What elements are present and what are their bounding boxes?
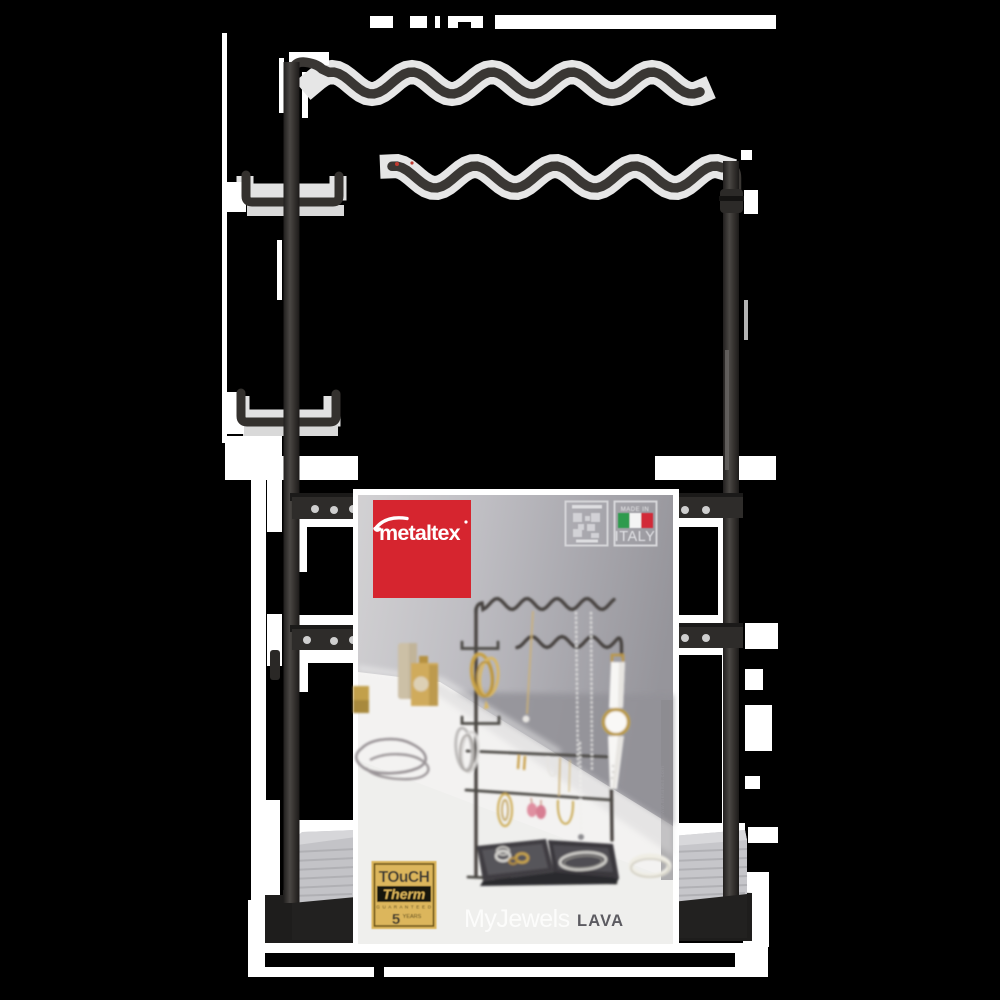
svg-text:MyJewels: MyJewels — [464, 905, 570, 933]
svg-text:www.metaltex.com: www.metaltex.com — [660, 766, 666, 819]
svg-text:YEARS: YEARS — [403, 914, 422, 920]
svg-text:Therm: Therm — [383, 886, 426, 902]
svg-text:metaltex: metaltex — [379, 521, 461, 545]
svg-text:LAVA: LAVA — [577, 912, 624, 930]
svg-text:G U A R A N T E E D: G U A R A N T E E D — [376, 905, 432, 910]
svg-text:TOuCH: TOuCH — [379, 869, 430, 886]
svg-text:MADE IN: MADE IN — [621, 507, 650, 513]
svg-text:5: 5 — [392, 911, 400, 928]
svg-text:ITALY: ITALY — [615, 529, 656, 545]
